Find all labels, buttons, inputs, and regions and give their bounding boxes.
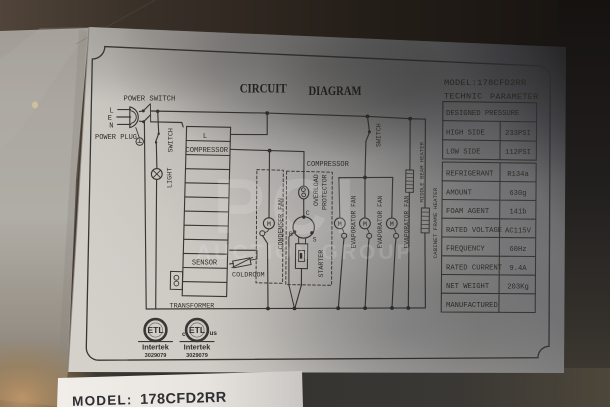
- svg-text:AUCTION GROUP: AUCTION GROUP: [196, 241, 414, 264]
- svg-text:PCI: PCI: [213, 162, 361, 250]
- svg-text:MODEL:: MODEL:: [72, 392, 133, 407]
- svg-text:178CFD2RR: 178CFD2RR: [140, 390, 227, 407]
